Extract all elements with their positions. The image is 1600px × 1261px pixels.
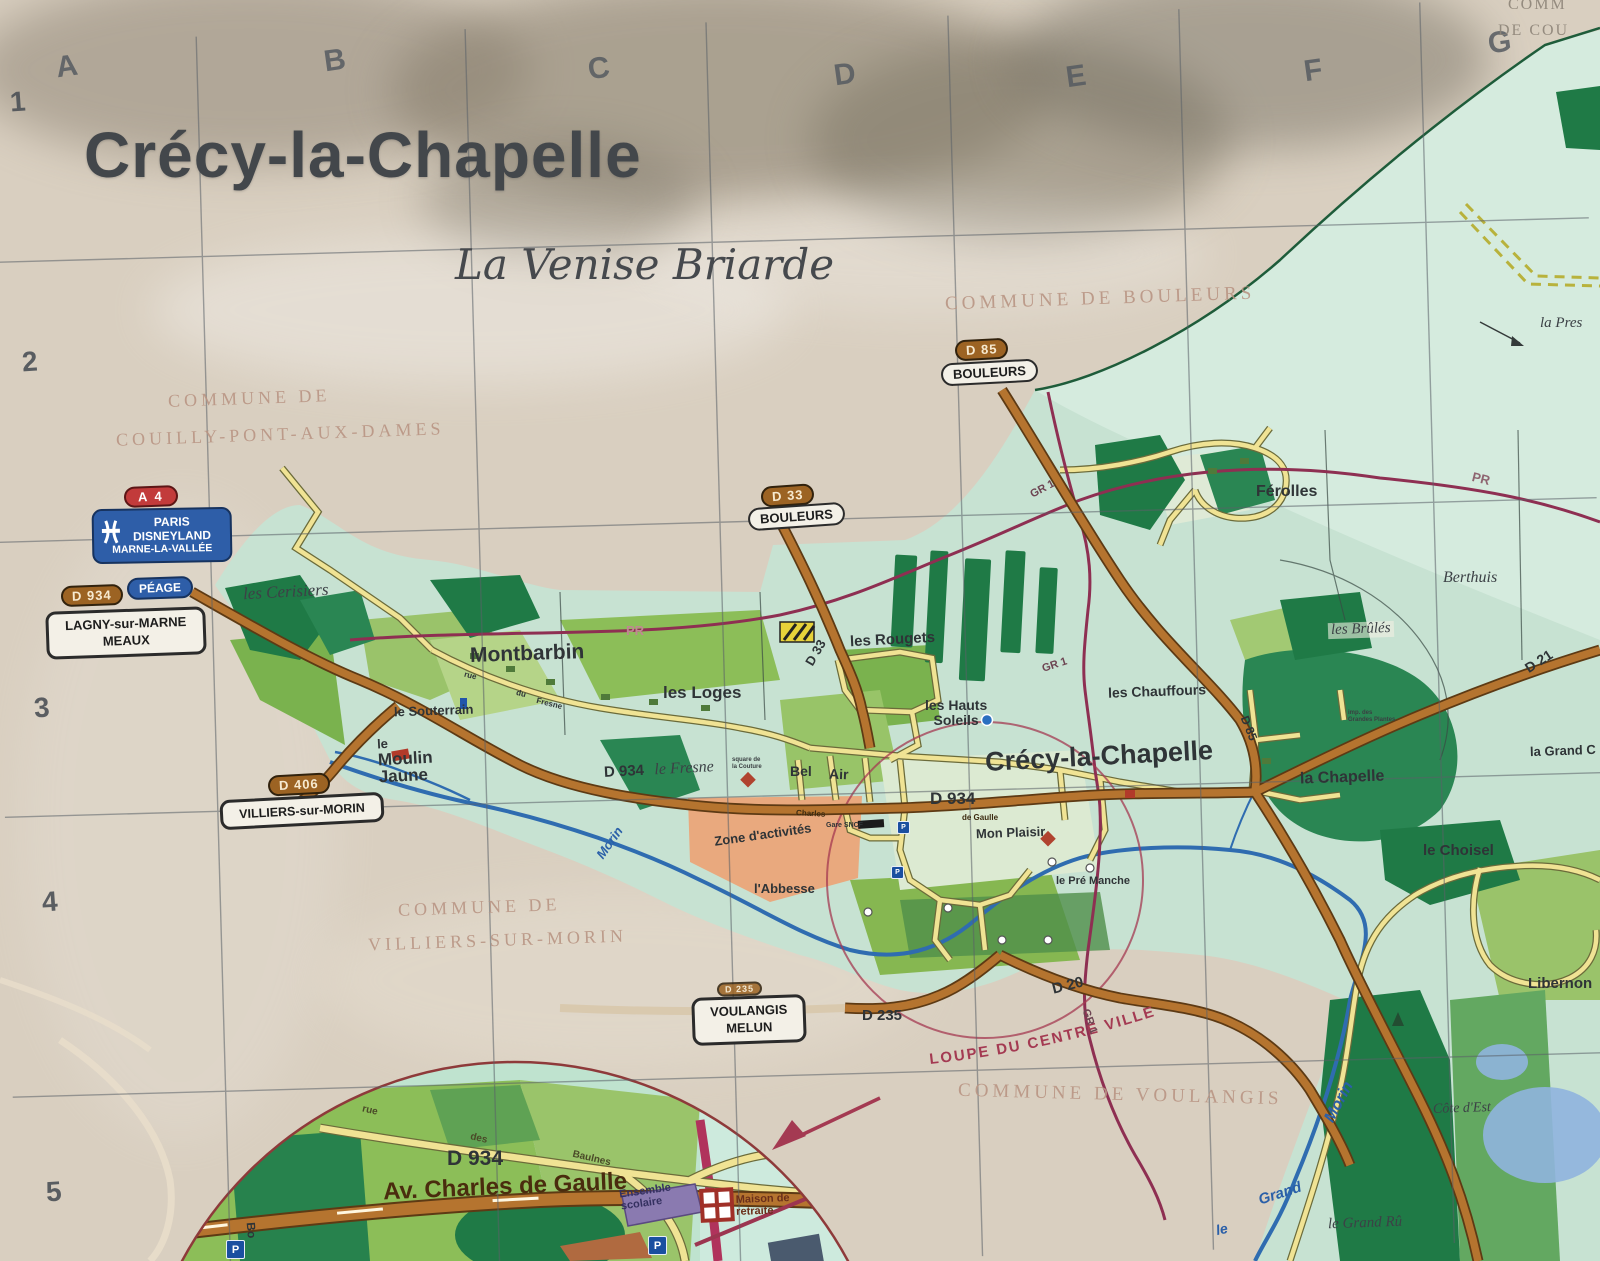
peage-badge: PÉAGE [127,576,194,600]
commune-corner-line2: DE COU [1498,22,1569,40]
level-crossing-icon [780,622,814,642]
grid-col-d: D [832,57,858,94]
place-libernon: Libernon [1528,976,1592,992]
voulangis-line2: MELUN [701,1018,798,1038]
parking-icon: P [648,1236,667,1255]
grid-row-2: 2 [21,345,39,378]
street-square-couture: square de la Couture [732,757,762,770]
road-d934-west: D 934 [604,762,645,781]
road-charles-label: Charles [796,809,826,819]
place-le-fresne: le Fresne [654,758,714,778]
d934-shield: D 934 [61,584,123,607]
place-berthuis: Berthuis [1443,570,1497,587]
place-montbarbin: Montbarbin [470,641,585,667]
map-title: Crécy-la-Chapelle [84,118,642,192]
motorway-icon [101,519,121,545]
map-photo: LOUPE DU CENTRE VILLE A B C D E F G 1 2 … [0,0,1600,1261]
place-la-chapelle: la Chapelle [1300,769,1385,789]
maison-retraite-icon [701,1189,733,1221]
place-les-hauts-soleils: les Hauts Soleils [925,698,987,727]
road-d934-town-label: D 934 [930,790,975,808]
place-ferolles: Férolles [1256,484,1317,501]
parking-icon: P [897,821,910,834]
grid-row-3: 3 [33,691,51,724]
building-icon [1125,790,1135,798]
parking-icon: P [226,1240,245,1259]
voulangis-line1: VOULANGIS [700,1001,797,1021]
street-imp-grandes-plantes: imp. des Grandes Plantes [1348,710,1395,723]
grid-row-1: 1 [9,85,27,118]
hauts-line1: les Hauts [925,698,987,713]
voulangis-direction-box: VOULANGIS MELUN [691,994,807,1046]
road-de-gaulle-label: de Gaulle [962,814,998,822]
place-la-grand-cour: la Grand C [1530,743,1596,759]
place-le-choisel: le Choisel [1423,843,1494,859]
place-la-presle: la Pres [1540,316,1582,332]
grid-row-4: 4 [41,885,59,918]
imp-line2: Grandes Plantes [1348,717,1395,724]
place-le-pre-manche: le Pré Manche [1056,876,1130,888]
square-line1: square de [732,757,762,764]
place-le-souterrain: le Souterrain [394,703,474,719]
commune-corner-line1: COMM [1508,0,1567,14]
place-moulin-jaune: le Moulin Jaune [377,735,434,787]
d85-shield: D 85 [954,338,1008,362]
place-les-chauffours: les Chauffours [1108,682,1206,700]
road-d235-label: D 235 [862,1008,902,1024]
trail-pr-label-west: PR [626,624,644,638]
grid-col-c: C [586,51,612,88]
moulin-jaune: Jaune [378,766,434,787]
grid-col-b: B [322,43,348,80]
poi-maison-retraite: Maison de retraite [736,1193,791,1218]
street-bo: Bo [244,1222,258,1239]
hauts-line2: Soleils [925,713,987,728]
d406-shield: D 406 [267,772,330,796]
place-le-grand-ru: le Grand Rû [1328,1215,1403,1233]
place-air: Air [829,767,849,782]
d235-shield: D 235 [717,981,762,997]
maison-line2: retraite [736,1205,790,1218]
grid-col-a: A [54,49,80,86]
place-gare-sncf: Gare SNCF [826,822,863,829]
lagny-direction-box: LAGNY-sur-MARNE MEAUX [45,606,207,659]
parking-icon: P [891,866,904,879]
road-d934-inset-label: D 934 [447,1148,503,1170]
place-l-abbesse: l'Abbesse [754,882,815,896]
square-line2: la Couture [732,764,762,771]
place-bel: Bel [790,764,812,779]
map-subtitle: La Venise Briarde [455,240,834,289]
grid-row-5: 5 [45,1175,63,1208]
imp-line1: imp. des [1348,710,1395,717]
place-mon-plaisir: Mon Plaisir [976,825,1046,841]
a4-shield: A 4 [124,485,178,508]
motorway-direction-panel: PARIS DISNEYLAND MARNE-LA-VALLÉE [92,507,233,564]
place-cote-d-est: Côte d'Est [1433,1101,1491,1118]
place-les-brules: les Brûlés [1328,621,1394,639]
place-les-loges: les Loges [663,684,741,702]
river-le: le [1215,1221,1229,1238]
